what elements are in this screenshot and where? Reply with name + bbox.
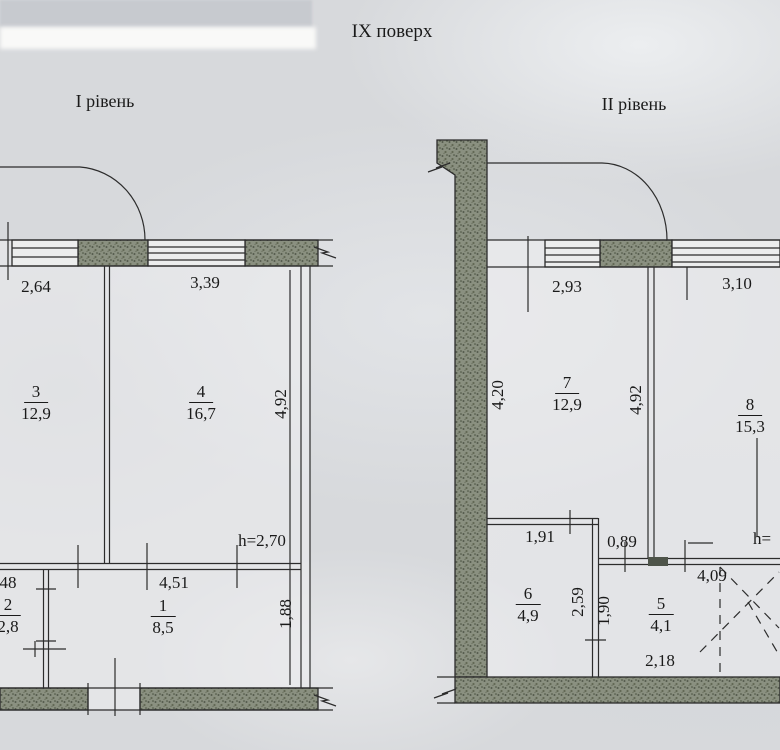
room-number: 5 <box>649 594 674 615</box>
dim-mid-height-l2: 4,92 <box>626 385 646 415</box>
dim-room6-width: 1,91 <box>525 527 555 547</box>
dim-left-height-l2: 4,20 <box>488 380 508 410</box>
dim-hall-width-l1: 4,51 <box>159 573 189 593</box>
room-area: 15,3 <box>735 417 765 437</box>
room-label-3: 3 12,9 <box>21 382 51 424</box>
level-1-label: І рівень <box>76 91 135 112</box>
room-area: 16,7 <box>186 404 216 424</box>
room-area: 12,9 <box>21 404 51 424</box>
door-swing-arc <box>487 163 667 240</box>
wall-segment <box>245 240 318 266</box>
room-number: 2 <box>0 595 20 616</box>
dim-hall-height-l1: 1,88 <box>276 599 296 629</box>
wall-break-icon <box>434 689 456 698</box>
level-2-label: ІІ рівень <box>602 94 667 115</box>
room-number: 1 <box>151 596 176 617</box>
wall-segment <box>140 688 318 710</box>
ceiling-height-note-l1: h=2,70 <box>238 531 286 551</box>
window <box>672 240 780 267</box>
room-area: 4,1 <box>650 616 671 636</box>
room-number: 6 <box>516 584 541 605</box>
level-2-interior <box>455 240 780 703</box>
room-number: 3 <box>24 382 49 403</box>
level-1-interior <box>0 240 310 710</box>
room-number: 4 <box>189 382 214 403</box>
room-label-8: 8 15,3 <box>735 395 765 437</box>
page-title: ІХ поверх <box>352 21 433 43</box>
wall-segment <box>78 240 148 266</box>
ceiling-height-note-l2: h= <box>753 529 771 549</box>
room-area: 12,9 <box>552 395 582 415</box>
wall-junction <box>648 557 668 566</box>
dim-hall-width-l2: 4,09 <box>697 566 727 586</box>
room-label-1: 1 8,5 <box>151 596 176 638</box>
wall-segment <box>600 240 672 267</box>
dim-right-height-l1: 4,92 <box>271 389 291 419</box>
room-area: 4,9 <box>517 606 538 626</box>
window <box>12 240 78 266</box>
wall-segment <box>0 688 88 710</box>
room-label-7: 7 12,9 <box>552 373 582 415</box>
dim-top-left-l1: 2,64 <box>21 277 51 297</box>
dim-wall-segment: 1,90 <box>594 596 614 626</box>
room-label-5: 5 4,1 <box>649 594 674 636</box>
dim-room5-width: 2,18 <box>645 651 675 671</box>
room-number: 8 <box>738 395 763 416</box>
room-area: 8,5 <box>152 618 173 638</box>
bearing-wall <box>437 140 487 677</box>
dim-top-right-l1: 3,39 <box>190 273 220 293</box>
dim-room6-depth: 2,59 <box>568 587 588 617</box>
room-label-2: 2 2,8 <box>0 595 20 637</box>
wall-segment <box>455 677 780 703</box>
dim-left-cut-l1: 48 <box>0 573 17 593</box>
floorplan-photo: ІХ поверх І рівень ІІ рівень 2,64 3,39 4… <box>0 0 780 750</box>
window <box>545 240 600 267</box>
room-area: 2,8 <box>0 617 19 637</box>
room-number: 7 <box>555 373 580 394</box>
dim-niche-width: 0,89 <box>607 532 637 552</box>
room-label-6: 6 4,9 <box>516 584 541 626</box>
door-swing-arc <box>0 167 145 240</box>
dim-top-right-l2: 3,10 <box>722 274 752 294</box>
dim-top-left-l2: 2,93 <box>552 277 582 297</box>
room-label-4: 4 16,7 <box>186 382 216 424</box>
